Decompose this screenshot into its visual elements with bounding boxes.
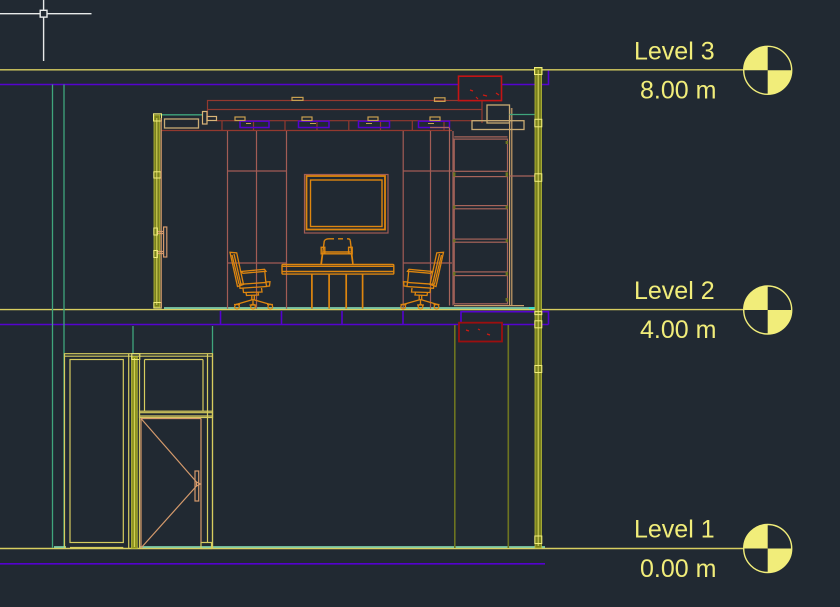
svg-text:Level 3: Level 3 [634,38,715,66]
svg-text:Level 1: Level 1 [634,516,715,544]
svg-text:Level 2: Level 2 [634,277,715,305]
svg-text:0.00 m: 0.00 m [640,555,716,583]
svg-text:4.00 m: 4.00 m [640,316,716,344]
svg-text:8.00 m: 8.00 m [640,77,716,105]
